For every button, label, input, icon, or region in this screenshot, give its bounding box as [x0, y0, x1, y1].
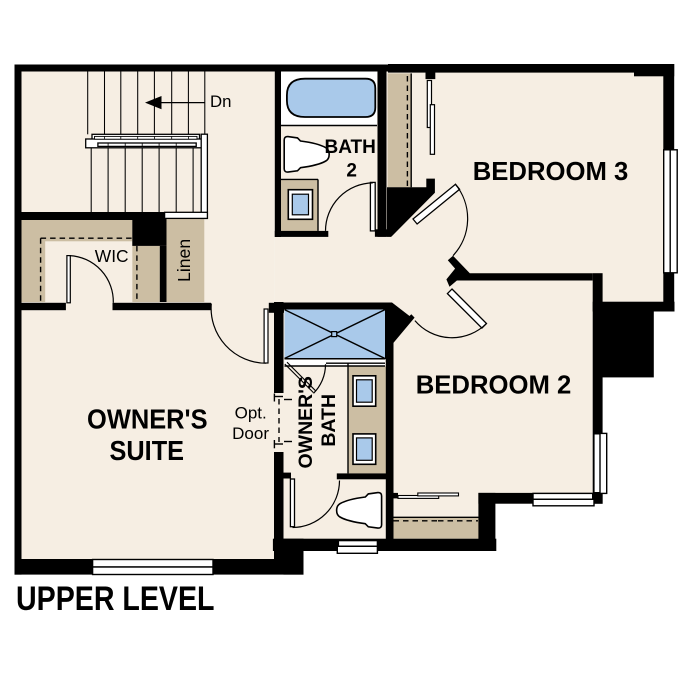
- svg-text:OWNER'S: OWNER'S: [87, 403, 208, 434]
- svg-text:WIC: WIC: [95, 246, 129, 266]
- svg-text:SUITE: SUITE: [110, 435, 185, 466]
- svg-text:BEDROOM 3: BEDROOM 3: [473, 158, 629, 186]
- svg-text:Door: Door: [232, 424, 269, 443]
- svg-text:BATH: BATH: [325, 137, 376, 158]
- svg-text:OWNER'S: OWNER'S: [295, 376, 317, 468]
- svg-text:BEDROOM 2: BEDROOM 2: [416, 371, 572, 399]
- svg-text:Dn: Dn: [210, 92, 231, 111]
- svg-text:BATH: BATH: [318, 394, 340, 447]
- svg-text:UPPER LEVEL: UPPER LEVEL: [16, 580, 215, 618]
- svg-text:Opt.: Opt.: [235, 404, 267, 423]
- svg-text:2: 2: [346, 160, 357, 181]
- svg-text:Linen: Linen: [174, 239, 194, 282]
